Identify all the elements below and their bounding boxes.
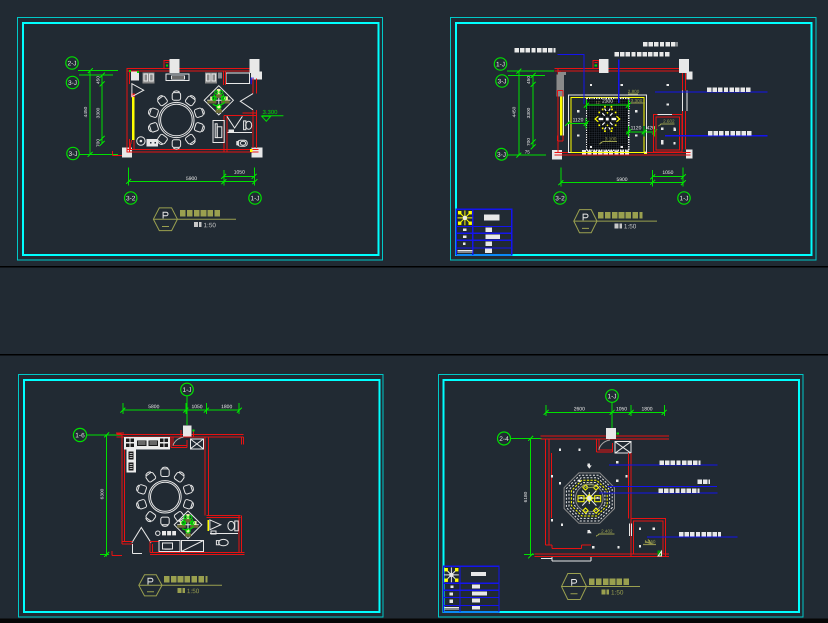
svg-text:2300: 2300 <box>602 99 613 105</box>
svg-text:1-J: 1-J <box>607 393 616 400</box>
svg-text:3-J: 3-J <box>68 151 77 158</box>
svg-text:3.300: 3.300 <box>631 98 643 103</box>
svg-text:6180: 6180 <box>523 491 529 502</box>
svg-text:1:50: 1:50 <box>624 223 637 230</box>
svg-text:3.300: 3.300 <box>262 110 278 116</box>
svg-text:3-J: 3-J <box>497 78 506 85</box>
svg-text:3-2: 3-2 <box>555 195 565 202</box>
svg-text:2.402: 2.402 <box>601 529 613 534</box>
svg-text:1-J: 1-J <box>496 61 505 68</box>
svg-text:3300: 3300 <box>96 107 102 118</box>
svg-text:1:50: 1:50 <box>187 588 200 595</box>
svg-text:2-4: 2-4 <box>499 436 509 443</box>
svg-text:1120: 1120 <box>631 125 642 131</box>
svg-text:4450: 4450 <box>83 106 89 117</box>
svg-text:1-6: 1-6 <box>75 432 85 439</box>
svg-text:6300: 6300 <box>99 488 105 499</box>
svg-text:3-2: 3-2 <box>126 195 136 202</box>
svg-text:75: 75 <box>525 150 531 155</box>
svg-text:3-J: 3-J <box>68 80 77 87</box>
svg-text:1050: 1050 <box>191 404 202 410</box>
svg-text:1.450: 1.450 <box>644 539 656 544</box>
svg-text:700: 700 <box>96 139 102 147</box>
svg-text:1050: 1050 <box>234 170 245 176</box>
svg-text:1050: 1050 <box>616 406 627 412</box>
svg-text:700: 700 <box>526 138 532 146</box>
svg-text:5900: 5900 <box>616 177 627 183</box>
svg-text:2-J: 2-J <box>67 60 76 67</box>
svg-text:1-J: 1-J <box>182 387 191 394</box>
svg-text:1:50: 1:50 <box>611 590 624 597</box>
svg-text:5800: 5800 <box>148 404 159 410</box>
svg-text:1:50: 1:50 <box>203 222 216 229</box>
svg-text:1-J: 1-J <box>250 195 259 202</box>
svg-text:1050: 1050 <box>662 170 673 176</box>
svg-text:2.602: 2.602 <box>663 119 675 124</box>
svg-text:2.500: 2.500 <box>582 482 594 487</box>
svg-text:450: 450 <box>96 76 102 84</box>
svg-text:1800: 1800 <box>221 404 232 410</box>
svg-text:3300: 3300 <box>526 107 532 118</box>
svg-text:5900: 5900 <box>186 176 197 182</box>
svg-text:2600: 2600 <box>574 406 585 412</box>
svg-text:12: 12 <box>596 101 600 105</box>
svg-text:3-J: 3-J <box>497 152 506 159</box>
svg-text:1800: 1800 <box>641 406 652 412</box>
svg-text:2.800: 2.800 <box>628 89 640 94</box>
svg-text:3.100: 3.100 <box>605 136 617 141</box>
svg-text:450: 450 <box>526 76 532 84</box>
svg-text:1120: 1120 <box>573 117 584 123</box>
svg-text:4450: 4450 <box>512 106 518 117</box>
svg-text:1-J: 1-J <box>679 195 688 202</box>
